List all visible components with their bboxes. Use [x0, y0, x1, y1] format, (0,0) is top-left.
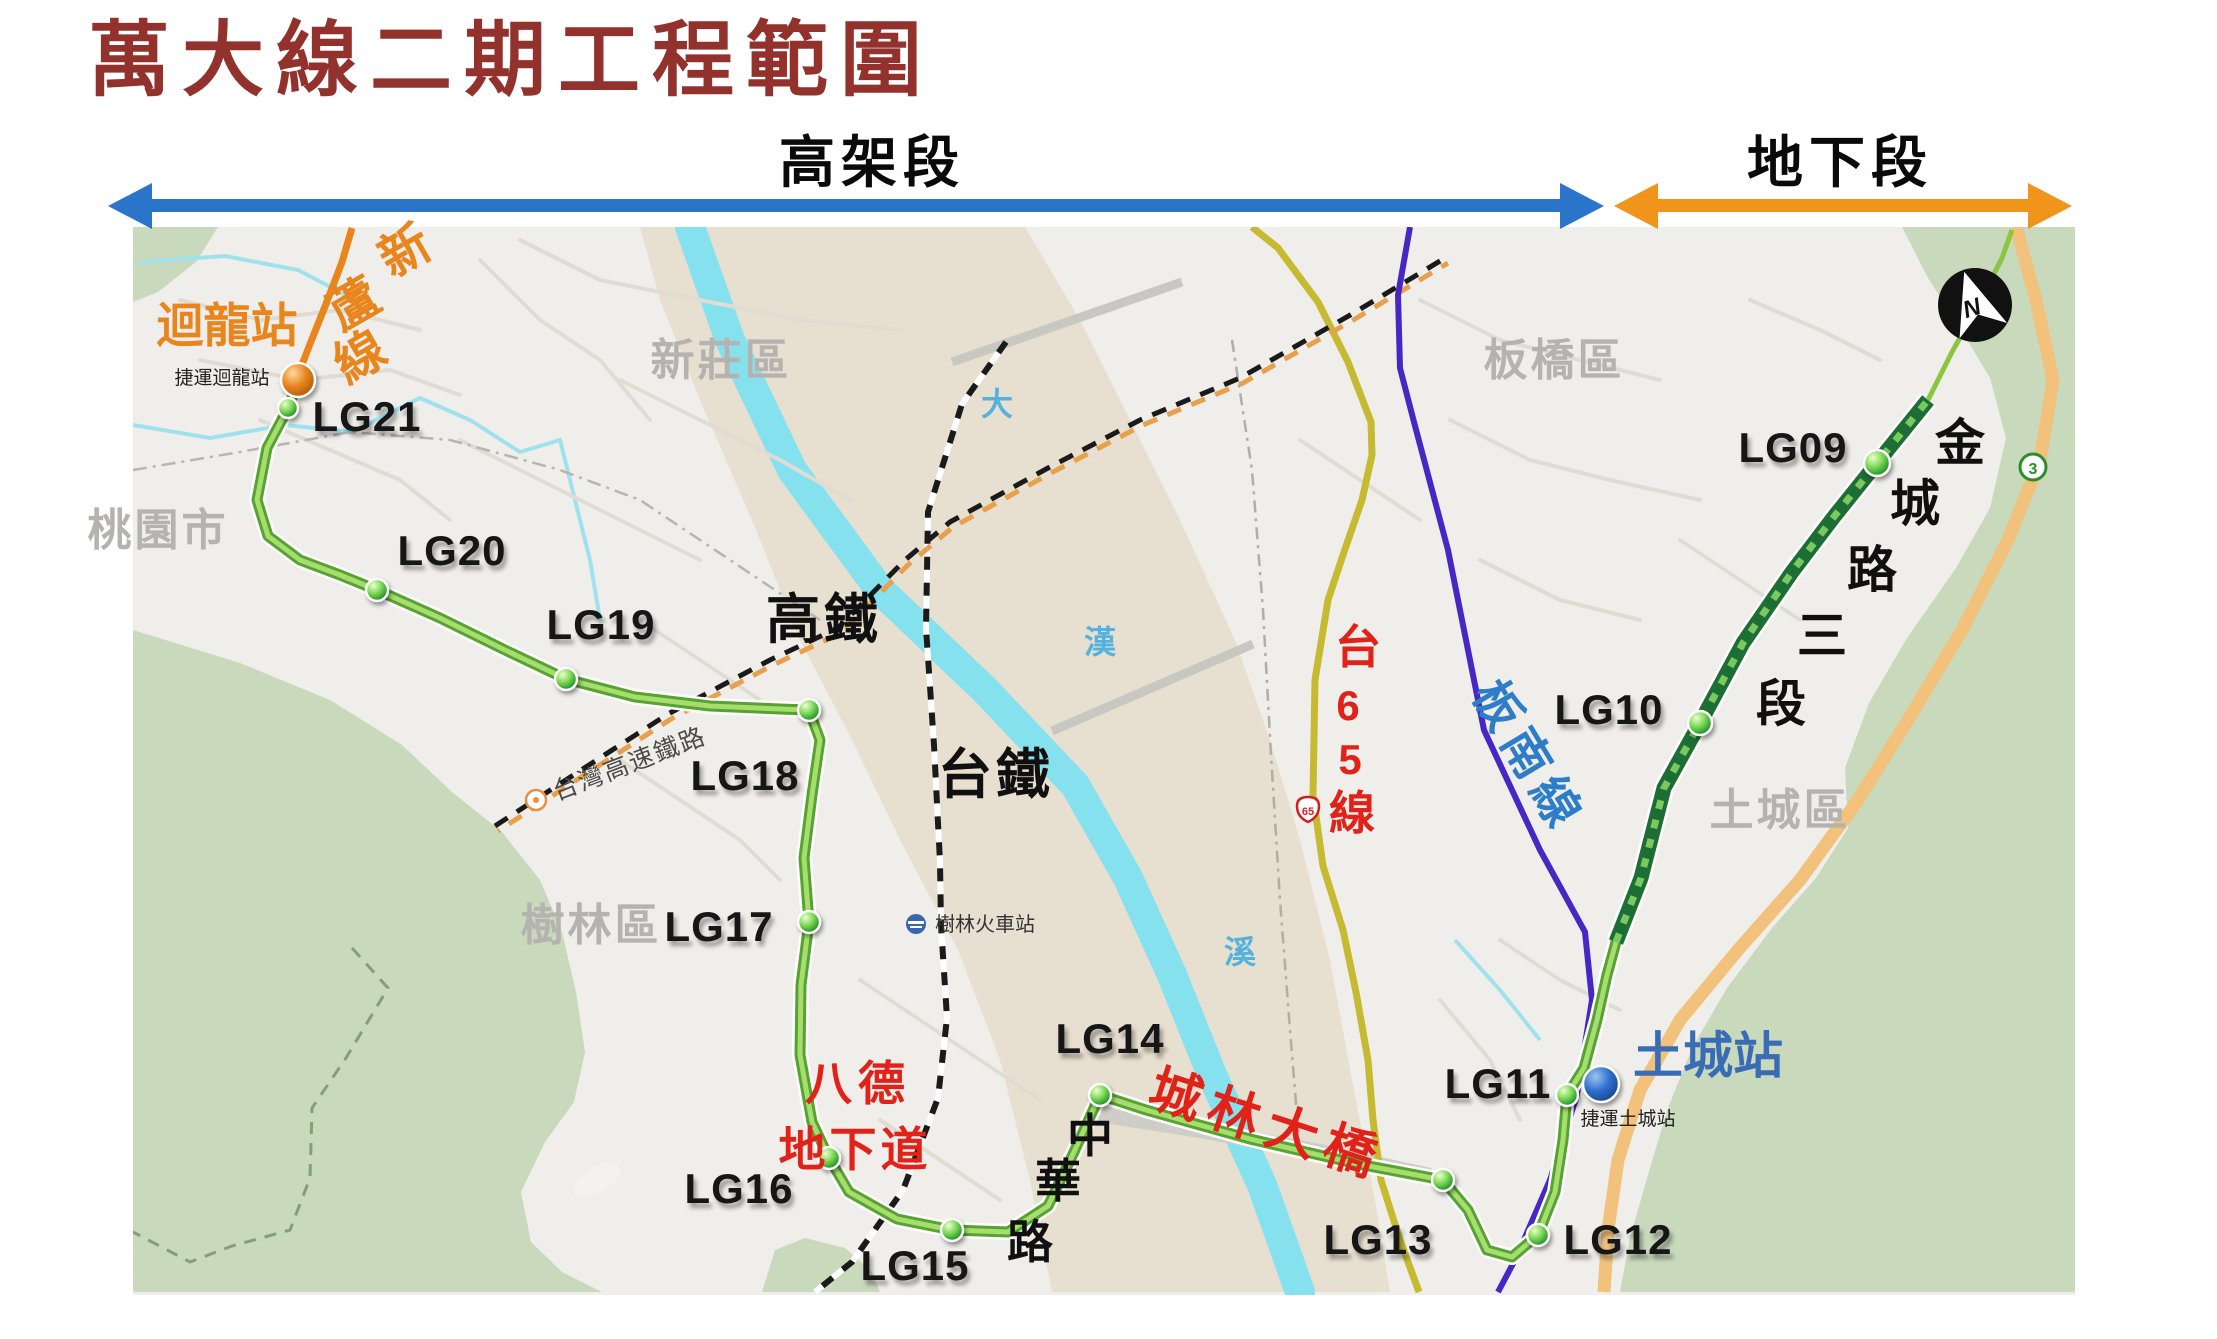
huilong-station-dot [281, 363, 315, 397]
label-tucheng-district: 土城區 [1710, 786, 1851, 835]
label-lg20: LG20 [397, 527, 506, 574]
label-river-da: 大 [981, 386, 1013, 422]
tucheng-station-dot [1583, 1066, 1619, 1102]
label-lg13: LG13 [1323, 1216, 1432, 1263]
station-dot-lg19 [555, 668, 577, 690]
station-dot-lg17 [798, 911, 820, 933]
label-underground-section: 地下段 [1747, 131, 1933, 194]
svg-text:三: 三 [1797, 608, 1847, 664]
svg-text:3: 3 [2029, 461, 2038, 478]
label-lg14: LG14 [1055, 1015, 1164, 1062]
svg-text:台: 台 [1335, 621, 1381, 673]
svg-text:路: 路 [1847, 542, 1898, 598]
slide-canvas: 65 3 桃園市 新莊區 板橋區 樹林區 土城區 LG21 LG20 [0, 0, 2217, 1339]
label-river-han: 漢 [1084, 624, 1117, 660]
station-dot-lg10 [1688, 711, 1712, 735]
svg-text:華: 華 [1035, 1155, 1081, 1207]
label-banqiao: 板橋區 [1484, 336, 1625, 385]
label-shulin-rail-station: 樹林火車站 [935, 913, 1035, 936]
label-lg17: LG17 [664, 903, 773, 950]
svg-text:5: 5 [1338, 736, 1361, 783]
shield3-icon: 3 [2020, 454, 2046, 480]
station-dot-lg13 [1432, 1169, 1454, 1191]
label-lg18: LG18 [690, 752, 799, 799]
label-huilong-station: 迴龍站 [157, 299, 298, 352]
svg-text:6: 6 [1336, 682, 1359, 729]
label-hsr: 高鐵 [766, 590, 882, 650]
label-taoyuan-city: 桃園市 [88, 506, 229, 555]
label-elevated-section: 高架段 [779, 131, 965, 194]
label-lg19: LG19 [546, 601, 655, 648]
label-lg09: LG09 [1738, 424, 1847, 471]
svg-text:城: 城 [1890, 476, 1940, 532]
label-lg21: LG21 [312, 393, 421, 440]
svg-text:路: 路 [1007, 1216, 1054, 1268]
label-lg10: LG10 [1554, 686, 1663, 733]
station-dot-lg20 [366, 579, 388, 601]
page-title: 萬大線二期工程範圍 [88, 12, 934, 108]
label-xinzhuang: 新莊區 [651, 336, 792, 385]
station-dot-lg14 [1089, 1084, 1111, 1106]
map-figure: 65 3 桃園市 新莊區 板橋區 樹林區 土城區 LG21 LG20 [0, 0, 2217, 1339]
station-dot-lg18 [798, 699, 820, 721]
station-dot-lg12 [1527, 1224, 1549, 1246]
label-bade: 八德 [805, 1057, 911, 1110]
label-huilong-sub: 捷運迴龍站 [174, 367, 269, 389]
station-dot-lg15 [941, 1219, 963, 1241]
label-shulin: 樹林區 [521, 901, 662, 950]
label-lg11: LG11 [1445, 1060, 1552, 1107]
label-lg12: LG12 [1563, 1216, 1672, 1263]
label-underpass: 地下道 [779, 1123, 932, 1176]
station-dot-lg21 [278, 398, 298, 418]
station-dot-lg09 [1864, 450, 1890, 476]
label-tucheng-station: 土城站 [1633, 1028, 1783, 1084]
svg-text:線: 線 [1329, 787, 1375, 839]
label-lg15: LG15 [860, 1242, 969, 1289]
label-river-xi: 溪 [1224, 934, 1257, 970]
thsr-logo-icon [526, 790, 546, 810]
station-dot-lg11 [1556, 1084, 1578, 1106]
label-tucheng-sub: 捷運土城站 [1580, 1108, 1675, 1130]
svg-text:65: 65 [1302, 806, 1314, 818]
svg-text:段: 段 [1756, 676, 1806, 732]
label-lg16: LG16 [684, 1165, 793, 1212]
tra-logo-icon [906, 914, 926, 934]
svg-text:金: 金 [1935, 415, 1986, 471]
label-tra: 台鐵 [938, 745, 1054, 805]
